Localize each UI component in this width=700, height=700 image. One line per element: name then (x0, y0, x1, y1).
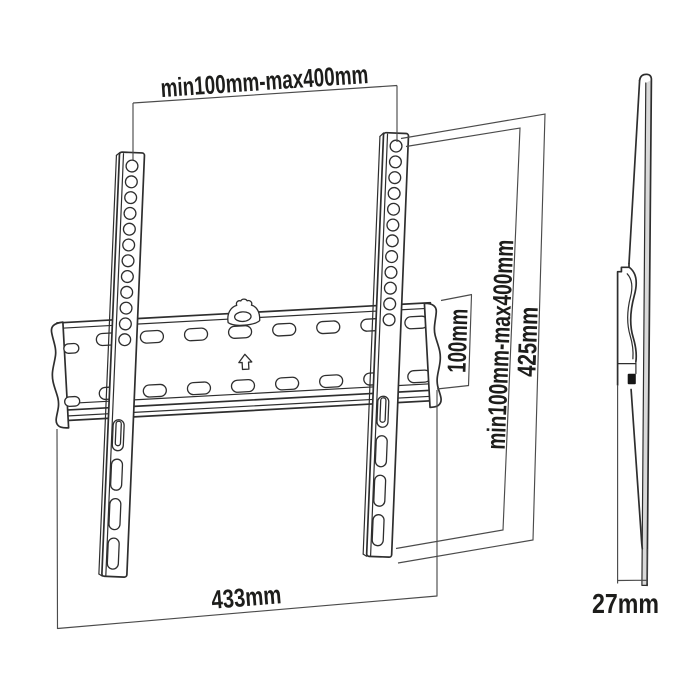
dim-plate-height: 100mm (437, 295, 474, 390)
front-view: min100mm-max400mm min100mm-max400mm 425m… (49, 59, 545, 629)
dim-plate-height-label: 100mm (441, 308, 473, 373)
dim-vesa-width: min100mm-max400mm (133, 59, 397, 160)
dim-bracket-height-label: 425mm (511, 306, 543, 377)
rail-right-hook-tongue (380, 398, 386, 423)
product-dimension-diagram: min100mm-max400mm min100mm-max400mm 425m… (0, 0, 700, 700)
rail-left-hook-tongue (115, 421, 121, 446)
dim-plate-width-label: 433mm (210, 579, 282, 614)
side-view: 27mm (592, 74, 659, 619)
panel-profile (629, 74, 651, 585)
bracket-hook (628, 374, 636, 385)
center-tab (227, 298, 260, 326)
dim-depth-label: 27mm (592, 588, 659, 619)
bracket-profile (618, 264, 637, 386)
tab-hole (234, 311, 251, 321)
dim-vesa-width-label: min100mm-max400mm (160, 59, 370, 103)
diagram-canvas: min100mm-max400mm min100mm-max400mm 425m… (0, 0, 700, 700)
